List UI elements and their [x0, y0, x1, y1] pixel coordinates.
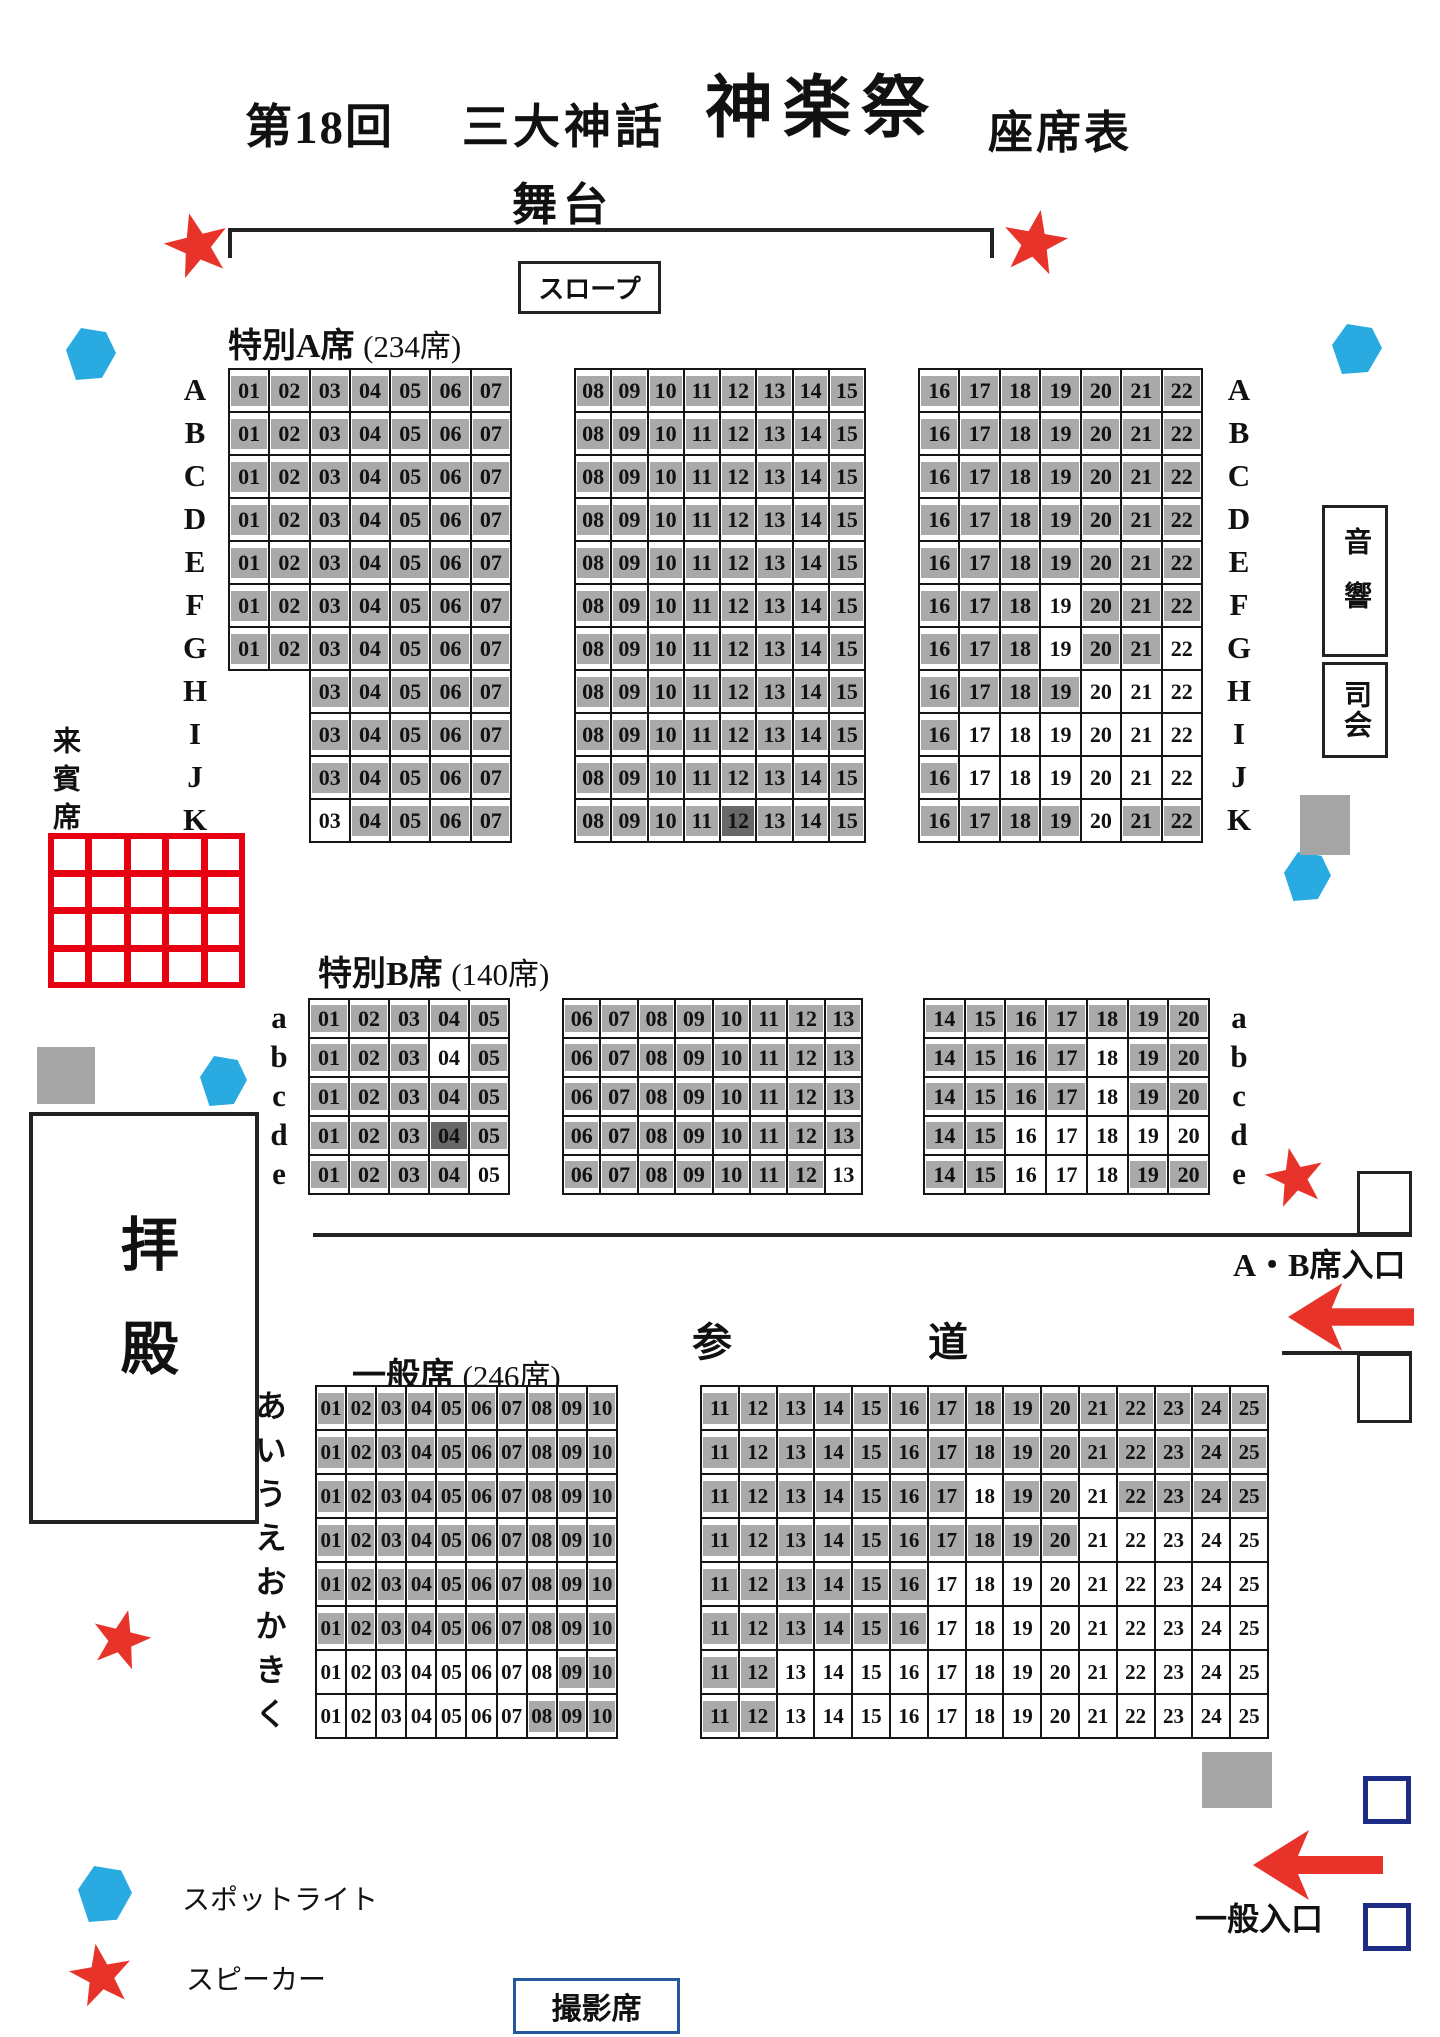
seat-open: 20: [1043, 1569, 1077, 1600]
seat-cell: 12: [787, 1155, 824, 1194]
seat-cell: 20: [1081, 455, 1121, 498]
seat-cell: 01: [229, 412, 269, 455]
seat-cell: 22: [1162, 541, 1202, 584]
seat-open: 19: [1005, 1701, 1039, 1732]
seat-cell: 13: [777, 1474, 815, 1518]
row-label-left: I: [172, 712, 218, 755]
seat-cell: 06: [430, 498, 470, 541]
seat-cell: 21: [1079, 1694, 1117, 1738]
seat-cell: 03: [389, 1038, 429, 1077]
seat-cell: 14: [924, 1116, 965, 1155]
seat-cell: 03: [376, 1694, 406, 1738]
seat-open: 20: [1083, 720, 1119, 750]
seat-cell: 14: [814, 1430, 852, 1474]
seat-cell: 16: [890, 1562, 928, 1606]
seat-marked: 06: [432, 591, 468, 621]
seat-cell: 15: [829, 670, 865, 713]
seat-open: 07: [499, 1701, 525, 1732]
seat-cell: 22: [1117, 1518, 1155, 1562]
seat-marked: 13: [758, 634, 790, 664]
seat-open: 03: [378, 1701, 404, 1732]
seat-marked: 24: [1194, 1437, 1228, 1468]
seat-marked: 03: [312, 677, 348, 707]
seat-marked: 03: [312, 376, 348, 406]
seat-marked: 15: [831, 505, 863, 535]
seat-cell: 19: [1040, 455, 1080, 498]
seat-open: 17: [1048, 1122, 1085, 1149]
seat-cell: 07: [497, 1694, 527, 1738]
seat-cell: 16: [919, 498, 959, 541]
seat-marked: 04: [352, 505, 388, 535]
seat-marked: 20: [1083, 376, 1119, 406]
seat-open: 19: [1005, 1613, 1039, 1644]
seat-cell: 09: [557, 1430, 587, 1474]
seat-cell: 03: [310, 713, 350, 756]
seat-open: 24: [1194, 1525, 1228, 1556]
seat-cell: 10: [713, 1038, 750, 1077]
seat-cell: 19: [1040, 756, 1080, 799]
seat-cell: 16: [890, 1518, 928, 1562]
seat-open: 24: [1194, 1613, 1228, 1644]
seat-open: 18: [968, 1569, 1002, 1600]
seat-cell: 10: [587, 1650, 617, 1694]
seat-marked: 02: [351, 1083, 387, 1110]
seat-cell: 07: [471, 455, 511, 498]
seat-cell: 16: [1005, 1155, 1046, 1194]
seat-cell: 11: [701, 1562, 739, 1606]
seat-cell: 13: [777, 1606, 815, 1650]
seat-marked: 07: [602, 1044, 635, 1071]
seat-marked: 01: [311, 1083, 347, 1110]
seat-marked: 03: [312, 462, 348, 492]
seat-marked: 02: [271, 591, 307, 621]
seat-marked: 08: [577, 634, 609, 664]
seat-cell: 11: [684, 369, 720, 412]
seat-marked: 05: [471, 1122, 507, 1149]
seat-cell: 07: [471, 412, 511, 455]
seat-cell: 22: [1117, 1606, 1155, 1650]
seat-cell: 11: [684, 541, 720, 584]
seat-marked: 21: [1123, 548, 1159, 578]
seat-cell: 04: [350, 713, 390, 756]
seat-cell: 06: [466, 1518, 496, 1562]
seat-open: 07: [499, 1657, 525, 1688]
seat-cell: 17: [928, 1606, 966, 1650]
seat-marked: 14: [926, 1005, 963, 1032]
seat-cell: 15: [965, 1038, 1006, 1077]
row-label-left: き: [248, 1649, 294, 1693]
seat-marked: 20: [1083, 591, 1119, 621]
seat-marked: 10: [715, 1044, 748, 1071]
slope-label: スロープ: [538, 269, 640, 306]
row-label-right: G: [1216, 626, 1262, 669]
legend-speaker-label: スピーカー: [186, 1958, 326, 1998]
seat-cell: 13: [825, 1038, 862, 1077]
seat-marked: 15: [854, 1437, 888, 1468]
seat-cell: 03: [310, 584, 350, 627]
seat-cell: 11: [750, 1116, 787, 1155]
seat-cell: 17: [1046, 999, 1087, 1038]
seat-open: 21: [1081, 1657, 1115, 1688]
seat-marked: 12: [722, 591, 754, 621]
seat-marked: 13: [758, 419, 790, 449]
seat-cell: 13: [777, 1562, 815, 1606]
seat-marked: 08: [577, 548, 609, 578]
speaker-star-icon: [163, 211, 231, 279]
seat-marked: 09: [613, 419, 645, 449]
seat-marked: 04: [408, 1569, 434, 1600]
seat-marked: 21: [1081, 1393, 1115, 1424]
seat-cell: 12: [739, 1386, 777, 1430]
seat-cell: 05: [469, 999, 509, 1038]
seat-cell: 16: [890, 1694, 928, 1738]
seat-open: 25: [1232, 1569, 1266, 1600]
seat-marked: 20: [1170, 1044, 1207, 1071]
stage-outline: [228, 228, 994, 258]
seat-cell: 05: [390, 584, 430, 627]
seat-cell: 11: [701, 1474, 739, 1518]
seat-cell: 14: [924, 999, 965, 1038]
seat-cell: 13: [756, 369, 792, 412]
seat-cell: 20: [1081, 498, 1121, 541]
row-label-right: b: [1216, 1037, 1262, 1076]
seat-marked: 19: [1005, 1525, 1039, 1556]
seat-marked: 12: [789, 1005, 822, 1032]
seat-cell: 17: [959, 756, 999, 799]
seat-cell: 16: [919, 455, 959, 498]
seat-marked: 04: [352, 806, 388, 836]
seat-marked: 03: [391, 1083, 427, 1110]
seat-marked: 09: [559, 1481, 585, 1512]
seat-cell: 17: [928, 1474, 966, 1518]
seat-cell: 11: [701, 1694, 739, 1738]
seat-cell: 12: [739, 1562, 777, 1606]
stage-label: 舞台: [512, 168, 614, 233]
seat-cell: 13: [756, 455, 792, 498]
seat-marked: 19: [1005, 1481, 1039, 1512]
seat-block-special-b-1: 0102030405010203040501020304050102030405…: [308, 998, 510, 1195]
seat-marked: 11: [752, 1083, 785, 1110]
seat-cell: 10: [648, 412, 684, 455]
event-subtitle: 三大神話: [462, 88, 666, 157]
seat-cell: 09: [611, 799, 647, 842]
seat-marked: 11: [686, 720, 718, 750]
seat-cell: 06: [466, 1562, 496, 1606]
seat-cell: 10: [587, 1694, 617, 1738]
seat-cell: 05: [469, 1155, 509, 1194]
seat-marked: 17: [930, 1525, 964, 1556]
seat-cell: 03: [389, 999, 429, 1038]
sound-box: 音響: [1322, 505, 1388, 657]
seat-cell: 16: [1005, 999, 1046, 1038]
seat-marked: 06: [565, 1083, 598, 1110]
seat-marked: 12: [722, 720, 754, 750]
seat-marked: 08: [529, 1525, 555, 1556]
seat-cell: 10: [648, 799, 684, 842]
seat-marked: 03: [391, 1005, 427, 1032]
seat-cell: 09: [611, 541, 647, 584]
row-label-left: H: [172, 669, 218, 712]
seat-cell: 09: [611, 627, 647, 670]
seat-marked: 16: [892, 1393, 926, 1424]
seat-marked: 05: [471, 1083, 507, 1110]
seat-cell: 19: [1128, 1155, 1169, 1194]
seat-marked: 03: [312, 591, 348, 621]
seat-cell: 14: [793, 584, 829, 627]
seat-cell: 23: [1155, 1562, 1193, 1606]
seat-cell: 24: [1192, 1518, 1230, 1562]
seat-marked: 03: [312, 763, 348, 793]
seat-marked: 09: [613, 720, 645, 750]
seat-open: 02: [348, 1701, 374, 1732]
seat-marked: 11: [686, 591, 718, 621]
seat-open: 22: [1119, 1657, 1153, 1688]
seat-cell: 15: [829, 756, 865, 799]
seat-open: 20: [1083, 677, 1119, 707]
seat-cell: 08: [575, 541, 611, 584]
seat-cell: 11: [701, 1650, 739, 1694]
seat-marked: 13: [758, 548, 790, 578]
seat-cell: 02: [346, 1694, 376, 1738]
seat-marked: 06: [468, 1525, 494, 1556]
seat-marked: 05: [392, 677, 428, 707]
seat-marked: 16: [892, 1525, 926, 1556]
seat-marked: 14: [795, 419, 827, 449]
seat-cell: 05: [390, 756, 430, 799]
seat-marked: 04: [352, 591, 388, 621]
seat-cell: 16: [890, 1650, 928, 1694]
seat-cell: 06: [563, 999, 600, 1038]
seat-cell: 09: [557, 1386, 587, 1430]
row-label-right: K: [1216, 798, 1262, 841]
seat-marked: 16: [921, 462, 957, 492]
seat-cell: 21: [1121, 713, 1161, 756]
seat-marked: 06: [432, 419, 468, 449]
seat-marked: 15: [831, 591, 863, 621]
seat-cell: 02: [346, 1606, 376, 1650]
seat-cell: 13: [825, 1155, 862, 1194]
seat-marked: 03: [378, 1613, 404, 1644]
seat-open: 18: [968, 1613, 1002, 1644]
seat-open: 13: [779, 1701, 813, 1732]
seat-marked: 01: [318, 1569, 344, 1600]
seat-marked: 23: [1157, 1481, 1191, 1512]
seat-cell: 05: [436, 1430, 466, 1474]
seat-open: 20: [1043, 1613, 1077, 1644]
seat-cell: 18: [1000, 498, 1040, 541]
seat-marked: 08: [529, 1613, 555, 1644]
seat-marked: 08: [577, 763, 609, 793]
seat-cell: 19: [1128, 999, 1169, 1038]
seat-marked: 12: [722, 462, 754, 492]
seat-cell: 11: [750, 1155, 787, 1194]
seat-marked: 07: [499, 1393, 525, 1424]
seat-cell: 08: [527, 1430, 557, 1474]
seat-cell: 02: [269, 412, 309, 455]
seat-marked: 15: [831, 677, 863, 707]
seat-open: 17: [1048, 1161, 1085, 1188]
seat-cell: 09: [611, 498, 647, 541]
seat-cell: 13: [756, 756, 792, 799]
seat-cell: 05: [390, 498, 430, 541]
seat-marked: 11: [703, 1437, 737, 1468]
seat-cell: 11: [701, 1606, 739, 1650]
seat-cell: 09: [611, 670, 647, 713]
seat-cell: 06: [466, 1430, 496, 1474]
seat-marked: 03: [378, 1437, 404, 1468]
seat-cell: 06: [563, 1038, 600, 1077]
seat-marked: 02: [351, 1044, 387, 1071]
seat-marked: 04: [352, 634, 388, 664]
seat-cell: 09: [557, 1650, 587, 1694]
seat-cell: 15: [965, 1155, 1006, 1194]
seat-cell: 08: [575, 455, 611, 498]
seat-cell: 21: [1079, 1606, 1117, 1650]
seat-cell: 09: [557, 1474, 587, 1518]
row-label-right: c: [1216, 1076, 1262, 1115]
seat-marked: 12: [789, 1122, 822, 1149]
seat-cell: 16: [919, 670, 959, 713]
seat-marked: 05: [471, 1005, 507, 1032]
seat-cell: 01: [309, 1077, 349, 1116]
seat-marked: 07: [602, 1083, 635, 1110]
seat-marked: 04: [352, 462, 388, 492]
seat-marked: 22: [1164, 505, 1200, 535]
row-label-left: F: [172, 583, 218, 626]
seat-cell: 20: [1041, 1474, 1079, 1518]
seat-marked: 12: [741, 1657, 775, 1688]
seat-cell: 04: [429, 1155, 469, 1194]
seat-cell: 07: [497, 1474, 527, 1518]
seat-marked: 07: [473, 763, 509, 793]
seat-cell: 03: [310, 498, 350, 541]
seat-cell: 22: [1162, 670, 1202, 713]
seat-cell: 21: [1121, 498, 1161, 541]
seat-marked: 04: [352, 720, 388, 750]
seat-marked: 19: [1042, 806, 1078, 836]
seat-cell: 13: [777, 1430, 815, 1474]
seat-open: 21: [1081, 1525, 1115, 1556]
seat-cell: 21: [1121, 541, 1161, 584]
seat-marked: 05: [392, 419, 428, 449]
seat-cell: 13: [777, 1694, 815, 1738]
seat-marked: 01: [231, 462, 267, 492]
seat-open: 21: [1081, 1613, 1115, 1644]
seat-marked: 03: [391, 1161, 427, 1188]
seat-cell: 14: [814, 1386, 852, 1430]
seat-marked: 01: [231, 634, 267, 664]
seat-marked: 16: [892, 1613, 926, 1644]
seat-marked: 04: [408, 1393, 434, 1424]
seat-open: 22: [1119, 1701, 1153, 1732]
seat-marked: 04: [408, 1481, 434, 1512]
row-label-right: A: [1216, 368, 1262, 411]
seat-marked: 14: [816, 1569, 850, 1600]
seat-cell: 20: [1081, 369, 1121, 412]
seat-cell: 03: [310, 756, 350, 799]
seat-cell: 08: [638, 1038, 675, 1077]
seat-cell: 08: [575, 799, 611, 842]
seat-cell: 08: [638, 1077, 675, 1116]
speaker-star-icon: [1264, 1146, 1326, 1208]
seat-cell: 14: [814, 1694, 852, 1738]
seat-cell: 16: [890, 1386, 928, 1430]
seat-cell: 04: [429, 1077, 469, 1116]
seat-cell: 18: [966, 1562, 1004, 1606]
seat-marked: 02: [348, 1525, 374, 1556]
seat-cell: 07: [600, 1077, 637, 1116]
seat-marked: 17: [961, 591, 997, 621]
seat-cell: 01: [316, 1474, 346, 1518]
seat-open: 25: [1232, 1613, 1266, 1644]
seat-cell: 18: [966, 1386, 1004, 1430]
seat-marked: 10: [589, 1393, 615, 1424]
seat-marked: 18: [1089, 1005, 1126, 1032]
seat-cell: 22: [1162, 756, 1202, 799]
seat-cell: 20: [1041, 1518, 1079, 1562]
seat-cell: 22: [1162, 713, 1202, 756]
seat-marked: 10: [589, 1613, 615, 1644]
seat-cell: 04: [406, 1606, 436, 1650]
seat-cell: 01: [316, 1518, 346, 1562]
seat-open: 22: [1164, 677, 1200, 707]
seat-cell: 06: [466, 1606, 496, 1650]
seat-cell: 03: [310, 541, 350, 584]
seat-marked: 01: [311, 1005, 347, 1032]
seat-marked: 16: [921, 634, 957, 664]
seat-cell: 14: [793, 541, 829, 584]
seat-cell: 04: [350, 799, 390, 842]
seat-marked: 11: [686, 806, 718, 836]
seat-marked: 13: [827, 1122, 860, 1149]
seat-cell: 25: [1230, 1562, 1268, 1606]
seat-cell: 13: [777, 1518, 815, 1562]
seat-marked: 25: [1232, 1481, 1266, 1512]
seat-marked: 13: [758, 720, 790, 750]
seat-cell: 17: [928, 1694, 966, 1738]
seat-cell: 04: [406, 1562, 436, 1606]
seat-marked: 07: [473, 591, 509, 621]
path-label: 参 道: [692, 1310, 1046, 1368]
seat-cell: 04: [406, 1518, 436, 1562]
seat-cell: 08: [638, 1116, 675, 1155]
seat-cell: 16: [919, 369, 959, 412]
seat-cell: 03: [310, 369, 350, 412]
seat-marked: 08: [577, 677, 609, 707]
seat-cell: 09: [557, 1606, 587, 1650]
seat-cell: 20: [1168, 999, 1209, 1038]
row-label-left: A: [172, 368, 218, 411]
seat-open: 06: [468, 1701, 494, 1732]
seat-marked: 19: [1042, 419, 1078, 449]
seat-marked: 05: [471, 1044, 507, 1071]
seat-marked: 02: [348, 1393, 374, 1424]
seat-cell: 02: [346, 1430, 376, 1474]
seat-marked: 09: [559, 1437, 585, 1468]
seat-cell: 22: [1117, 1474, 1155, 1518]
seat-cell: 08: [575, 498, 611, 541]
seat-cell: 11: [684, 584, 720, 627]
seat-cell: 19: [1003, 1386, 1041, 1430]
seat-open: 20: [1043, 1701, 1077, 1732]
seat-open: 08: [529, 1657, 555, 1688]
equipment-square: [1202, 1752, 1272, 1808]
seat-cell: 02: [346, 1474, 376, 1518]
seat-marked: 20: [1170, 1005, 1207, 1032]
seat-cell: 02: [346, 1650, 376, 1694]
seat-cell: 01: [229, 455, 269, 498]
seat-marked: 18: [1002, 548, 1038, 578]
